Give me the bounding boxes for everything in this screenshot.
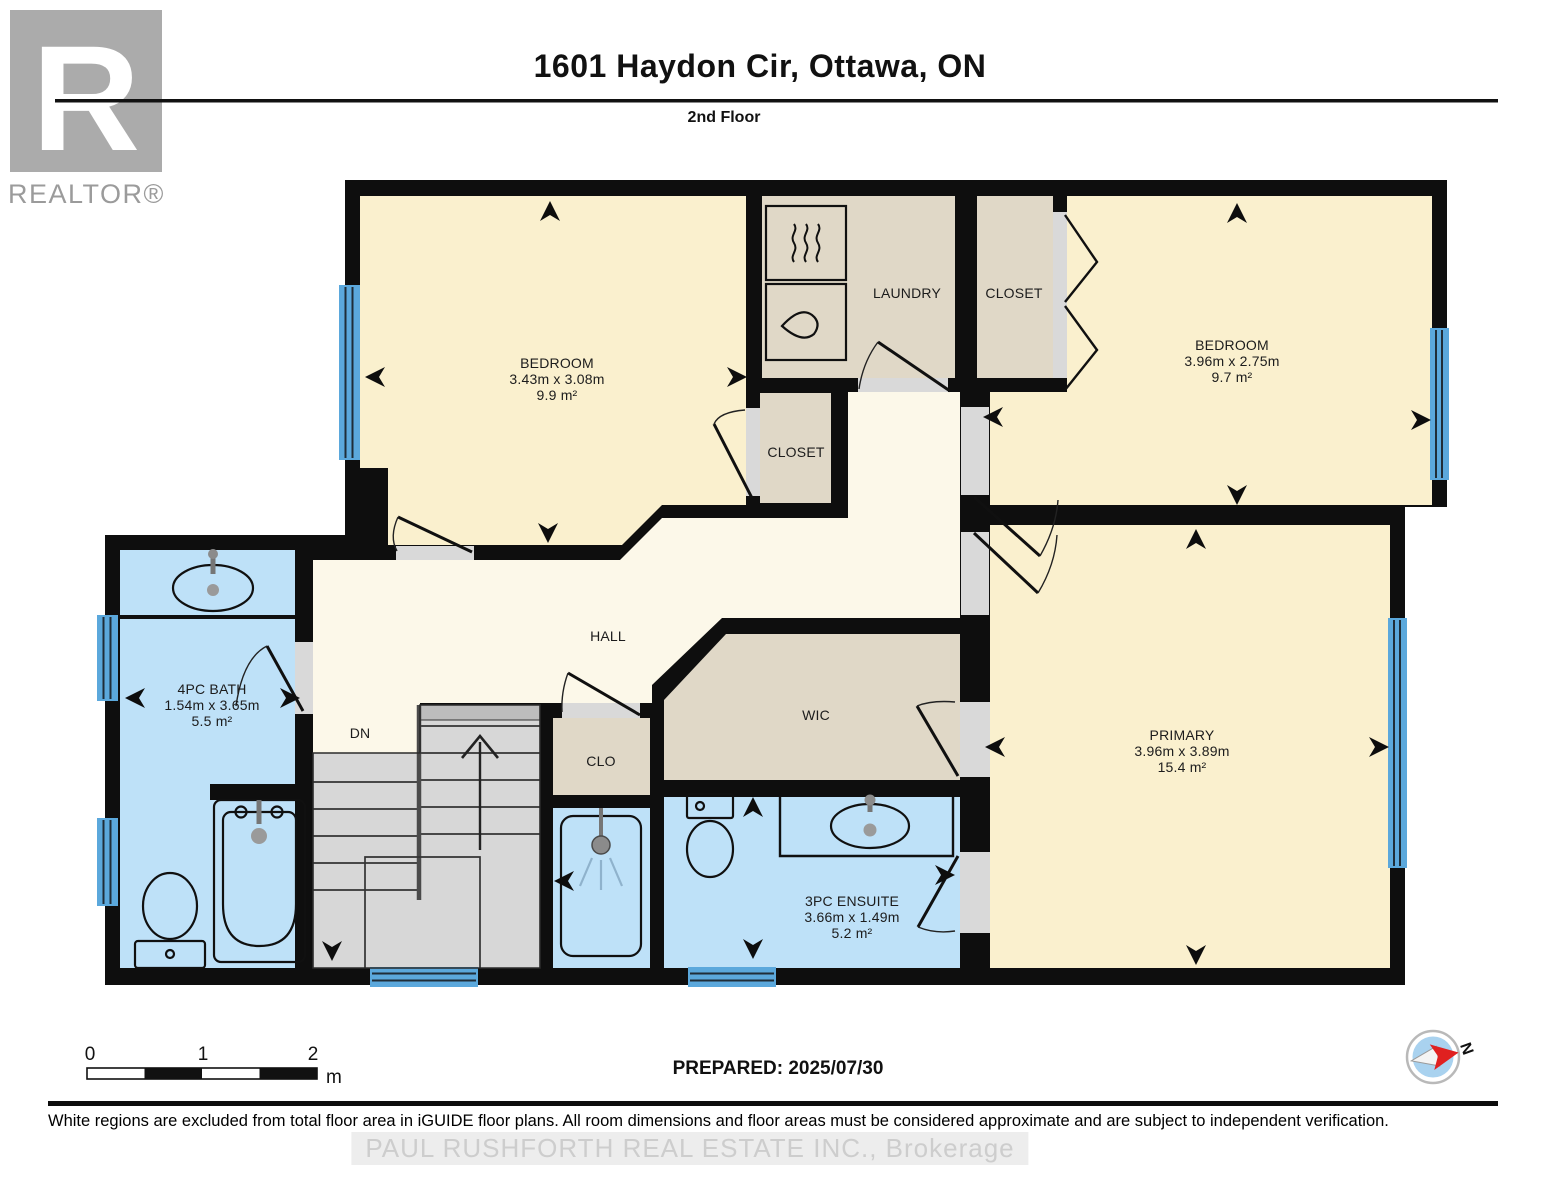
window-bath-upper [97,615,118,701]
svg-text:3.96m x 3.89m: 3.96m x 3.89m [1134,743,1229,759]
svg-text:1.54m x 3.65m: 1.54m x 3.65m [164,697,259,713]
door-opening-closet-top [1053,212,1067,378]
window-bedroom-1 [339,285,360,460]
door-opening-wic [960,702,990,777]
svg-text:BEDROOM: BEDROOM [520,355,594,371]
scale-tick-1: 1 [198,1044,209,1065]
stairs-dn-label: DN [350,725,371,741]
svg-text:9.7 m²: 9.7 m² [1212,369,1253,385]
clo-label: CLO [586,753,615,769]
window-bedroom-2 [1430,328,1449,480]
floor-plan-canvas: R REALTOR® [0,0,1553,1200]
realtor-logo: R REALTOR® [8,10,165,209]
window-bath-lower [97,818,118,906]
svg-text:5.5 m²: 5.5 m² [192,713,233,729]
door-opening-closet-mid [746,408,760,496]
door-opening-bedroom-2 [961,407,989,495]
room-floors [120,196,1432,968]
closet-top-label: CLOSET [985,285,1042,301]
footer-disclaimer: White regions are excluded from total fl… [48,1112,1389,1131]
closet-mid-label: CLOSET [767,444,824,460]
window-ensuite [688,967,776,987]
svg-text:3PC ENSUITE: 3PC ENSUITE [805,893,899,909]
door-opening-ensuite [960,852,990,933]
header-rule [55,99,1498,103]
scale-unit: m [326,1067,342,1088]
scale-tick-0: 0 [85,1044,96,1065]
brokerage-watermark: PAUL RUSHFORTH REAL ESTATE INC., Brokera… [351,1132,1028,1165]
tub-nook-wall [210,784,303,800]
compass-icon: N [1407,1031,1476,1083]
footer-rule [48,1101,1498,1106]
realtor-wordmark: REALTOR® [8,179,165,209]
svg-text:3.66m x 1.49m: 3.66m x 1.49m [804,909,899,925]
scale-bar: 0 1 2 m [85,1044,342,1088]
prepared-date: PREPARED: 2025/07/30 [673,1058,884,1080]
room-ensuite [664,797,960,968]
svg-text:PRIMARY: PRIMARY [1150,727,1215,743]
svg-text:BEDROOM: BEDROOM [1195,337,1269,353]
svg-text:4PC BATH: 4PC BATH [177,681,246,697]
svg-text:15.4 m²: 15.4 m² [1158,759,1207,775]
svg-text:5.2 m²: 5.2 m² [832,925,873,941]
svg-text:3.43m x 3.08m: 3.43m x 3.08m [509,371,604,387]
realtor-r-icon: R [32,14,140,182]
svg-text:9.9 m²: 9.9 m² [537,387,578,403]
window-stairwell [370,967,478,987]
stair-landing-strip [420,705,540,720]
svg-text:3.96m x 2.75m: 3.96m x 2.75m [1184,353,1279,369]
window-primary [1388,618,1407,868]
room-bath [120,550,295,968]
door-opening-clo [562,703,640,718]
wic-label: WIC [802,707,830,723]
laundry-label: LAUNDRY [873,285,942,301]
hall-label: HALL [590,628,626,644]
scale-tick-2: 2 [308,1044,319,1065]
